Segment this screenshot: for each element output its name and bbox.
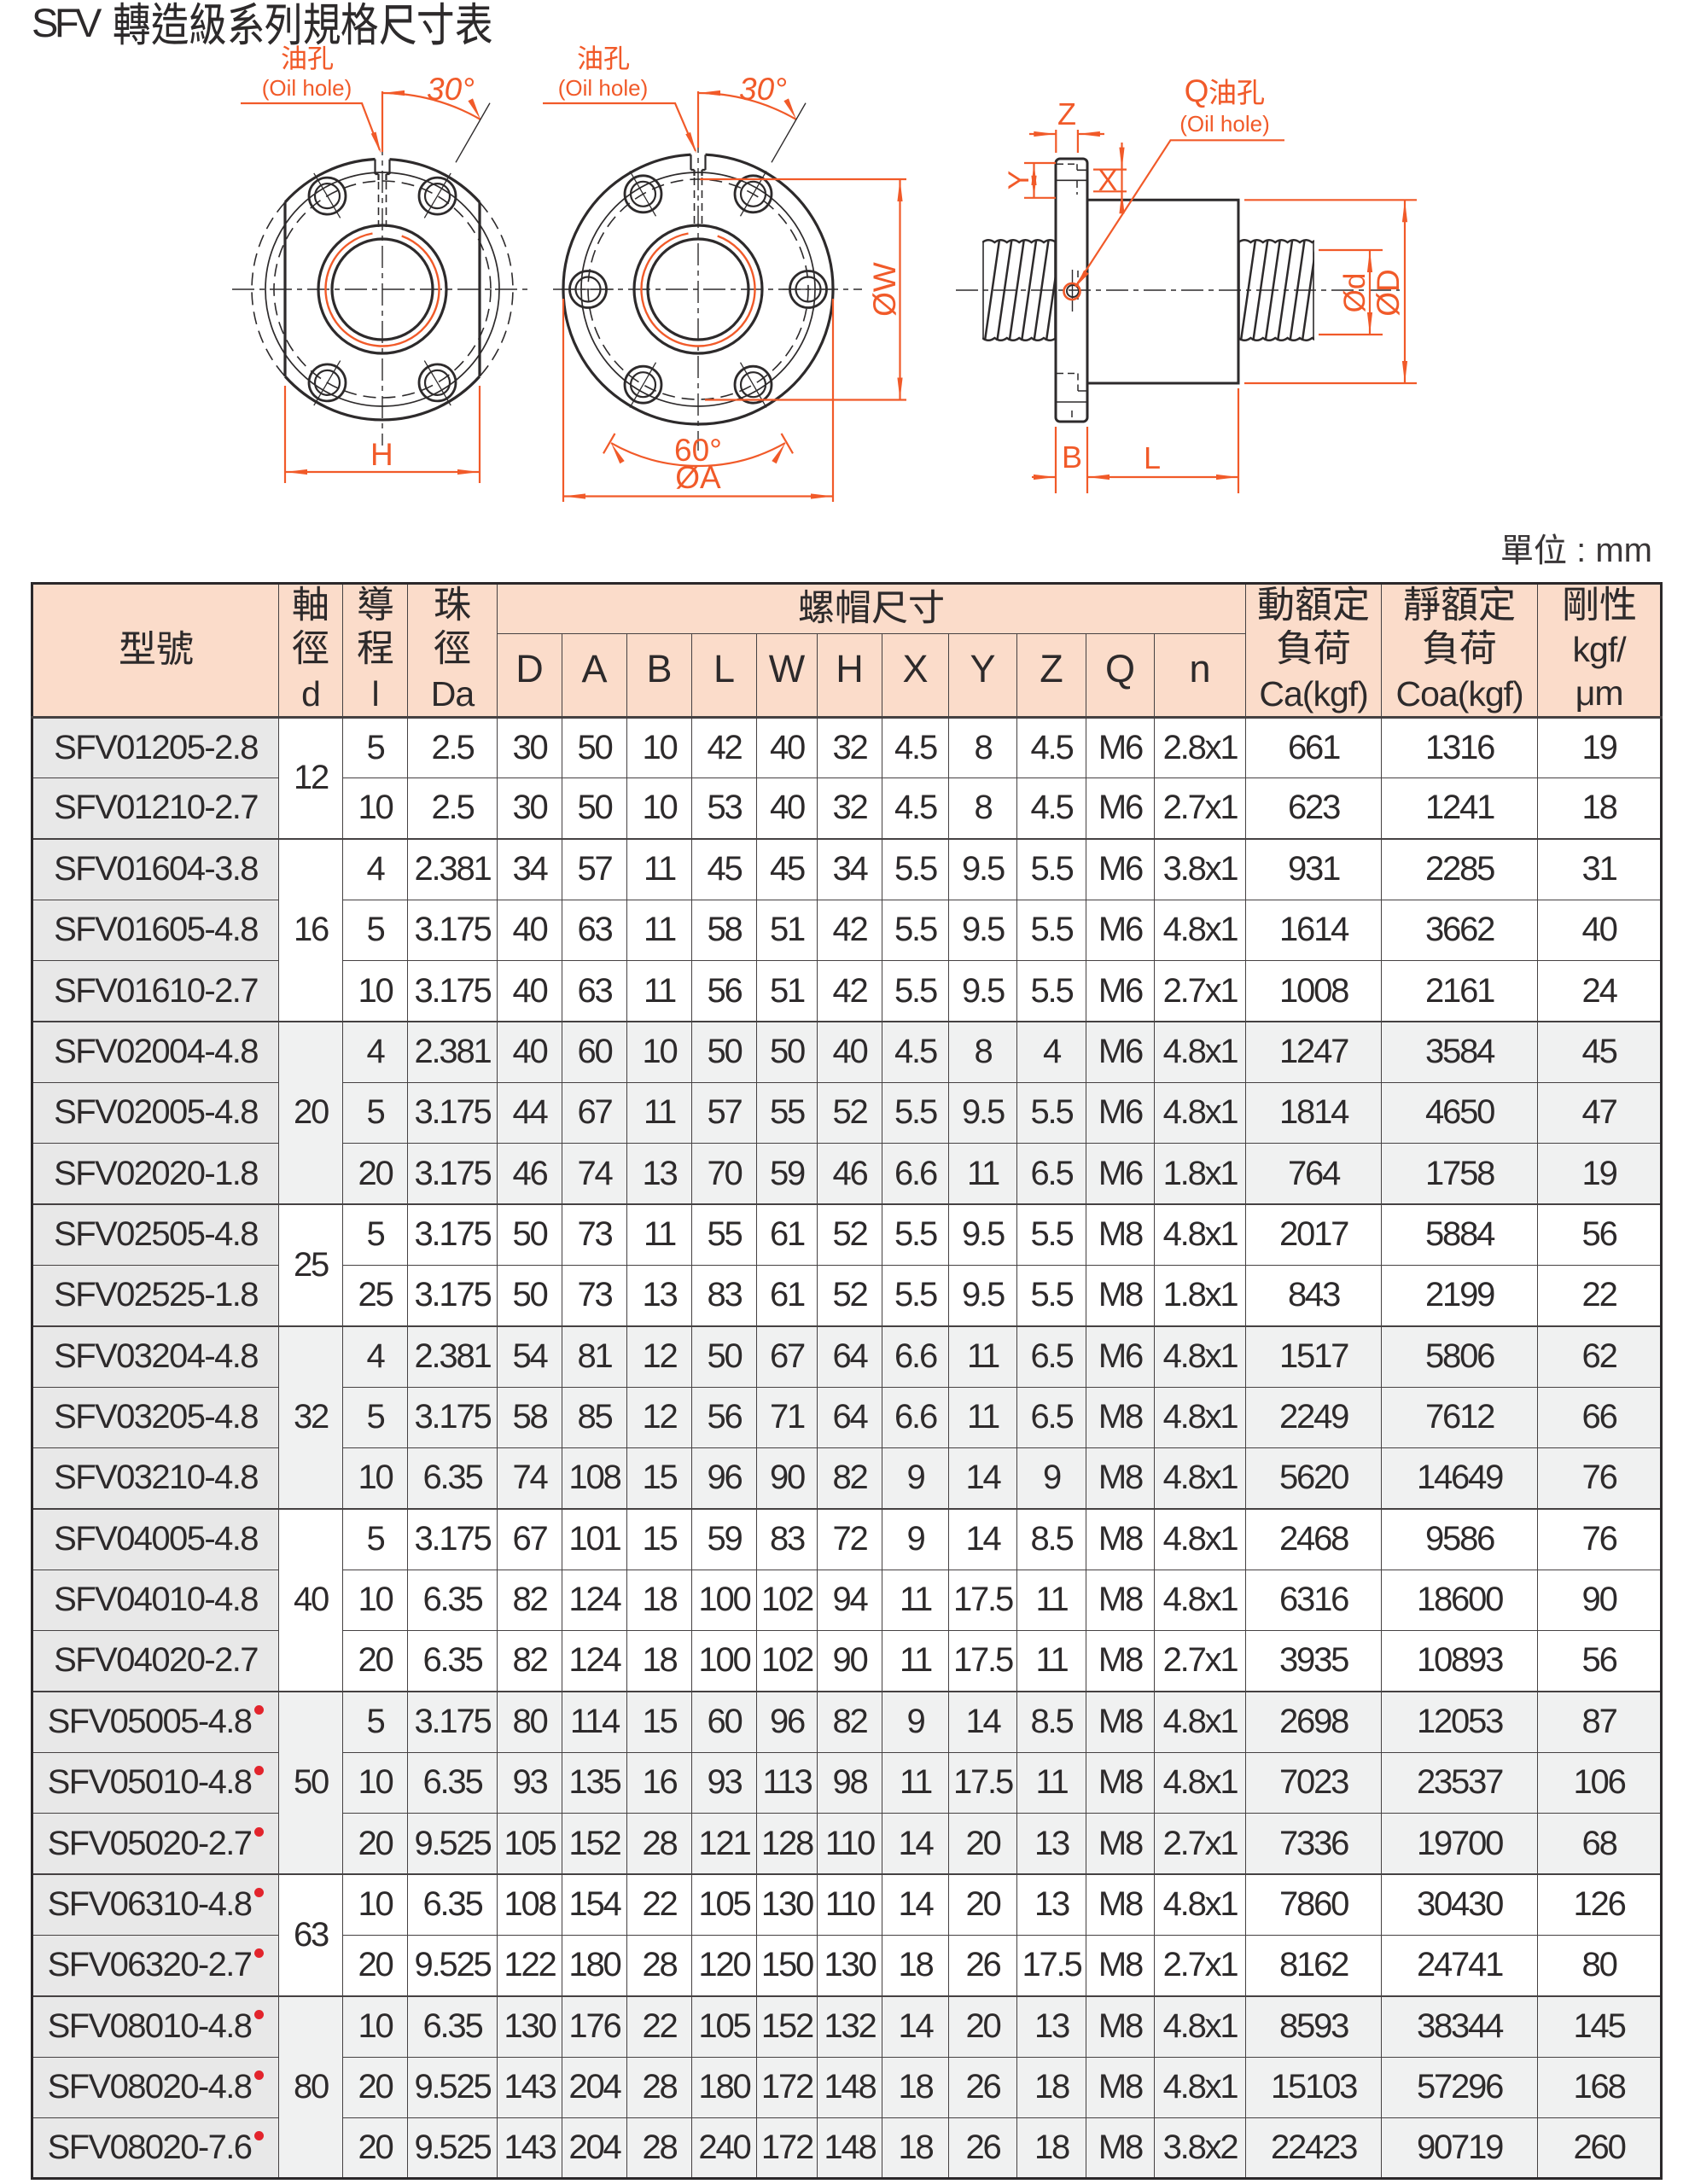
svg-text:ØD: ØD xyxy=(1371,269,1406,317)
svg-text:Ød: Ød xyxy=(1338,273,1372,313)
svg-text:H: H xyxy=(370,437,393,472)
svg-text:Z: Z xyxy=(1057,96,1076,131)
svg-text:ØA: ØA xyxy=(675,460,721,495)
svg-text:30°: 30° xyxy=(739,72,787,107)
svg-text:X: X xyxy=(1098,165,1118,197)
svg-text:B: B xyxy=(1062,440,1082,475)
svg-text:ØW: ØW xyxy=(867,262,902,317)
svg-text:30°: 30° xyxy=(427,72,475,107)
svg-text:L: L xyxy=(1144,440,1161,475)
svg-text:Y: Y xyxy=(1003,171,1035,190)
